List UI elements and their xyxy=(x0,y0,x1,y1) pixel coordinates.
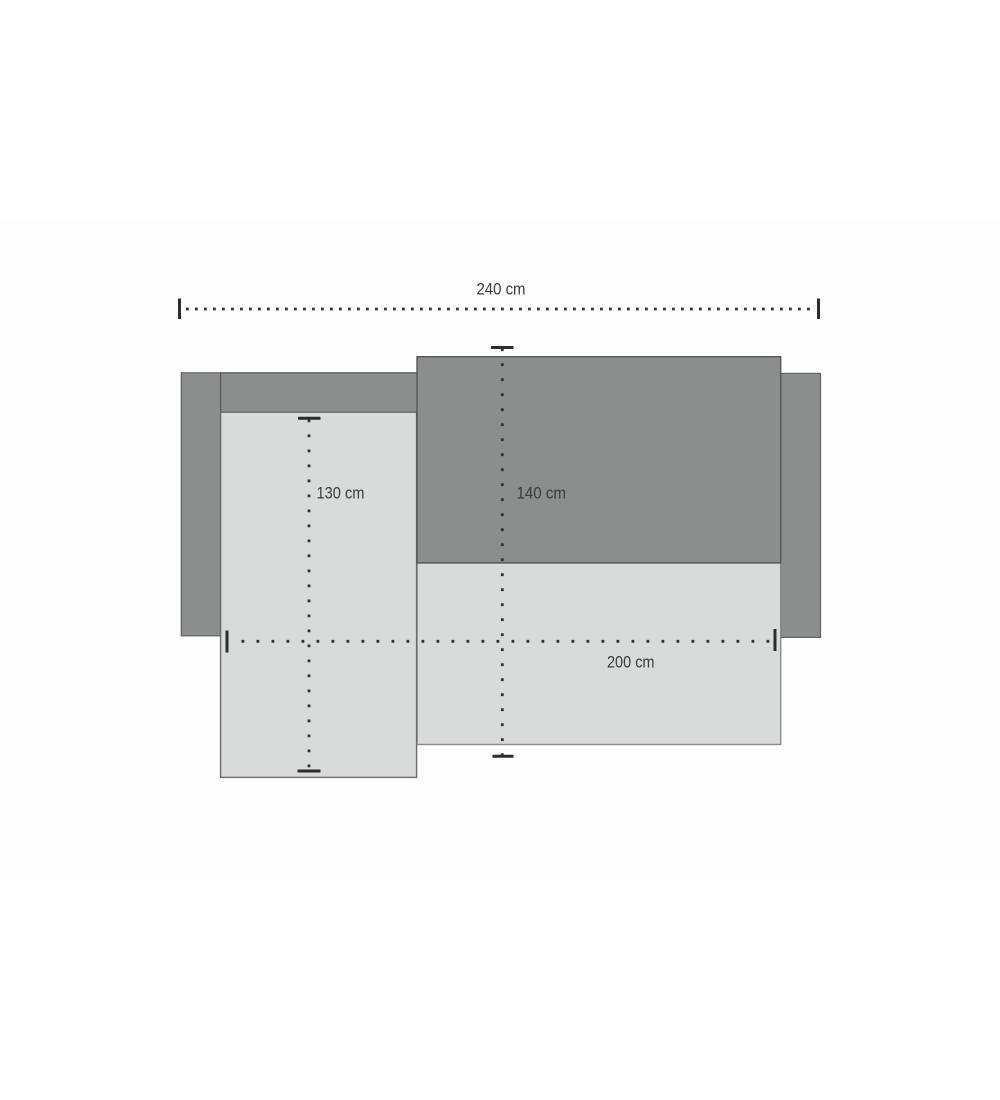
svg-text:200 cm: 200 cm xyxy=(607,653,655,672)
svg-text:130 cm: 130 cm xyxy=(317,484,365,503)
svg-text:140 cm: 140 cm xyxy=(517,484,567,503)
svg-text:240 cm: 240 cm xyxy=(477,280,526,299)
